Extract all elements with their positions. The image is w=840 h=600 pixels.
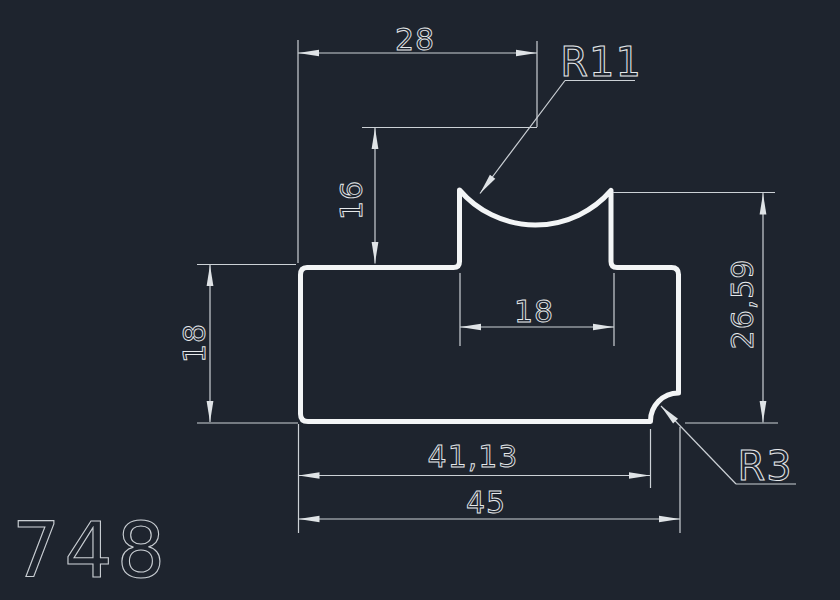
arrowhead (207, 265, 214, 286)
arrowhead (760, 401, 767, 422)
dimension-right-height: 26,59 (613, 193, 778, 424)
arrowhead (372, 128, 379, 149)
arrowhead (207, 401, 214, 422)
dimension-value: 18 (177, 323, 212, 363)
radius-label: R11 (560, 39, 642, 85)
arrowhead (299, 516, 320, 523)
dimension-value: 18 (514, 294, 554, 329)
arrowhead (299, 472, 320, 479)
dimension-left-height: 18 (177, 265, 298, 424)
dimension-boss-width: 18 (460, 273, 614, 346)
dimension-notch-center-height: 16 (334, 128, 537, 264)
arrowhead (661, 406, 678, 424)
dimension-top-width: 28 (298, 22, 537, 263)
dimension-value: 45 (466, 485, 506, 520)
dimension-value: 41,13 (428, 439, 519, 474)
arrowhead (629, 472, 650, 479)
arrowhead (516, 50, 537, 57)
arrowhead (760, 194, 767, 215)
arrowhead (480, 175, 495, 194)
dimension-value: 16 (334, 180, 369, 220)
leader-notch-radius: R11 (480, 39, 642, 194)
arrowhead (298, 50, 319, 57)
dimension-value: 26,59 (725, 259, 760, 350)
dimension-value: 28 (395, 22, 435, 57)
arrowhead (372, 242, 379, 263)
radius-label: R3 (737, 443, 792, 489)
leader-line (480, 81, 565, 194)
profile-outline (301, 190, 679, 422)
arrowhead (593, 324, 614, 331)
drawing-number: 748 (12, 506, 169, 595)
leader-corner-radius: R3 (661, 406, 796, 489)
cad-canvas[interactable]: 28 16 R11 18 18 26,5 (0, 0, 840, 600)
cad-drawing-viewport: 28 16 R11 18 18 26,5 (0, 0, 840, 600)
arrowhead (659, 516, 680, 523)
arrowhead (460, 324, 481, 331)
